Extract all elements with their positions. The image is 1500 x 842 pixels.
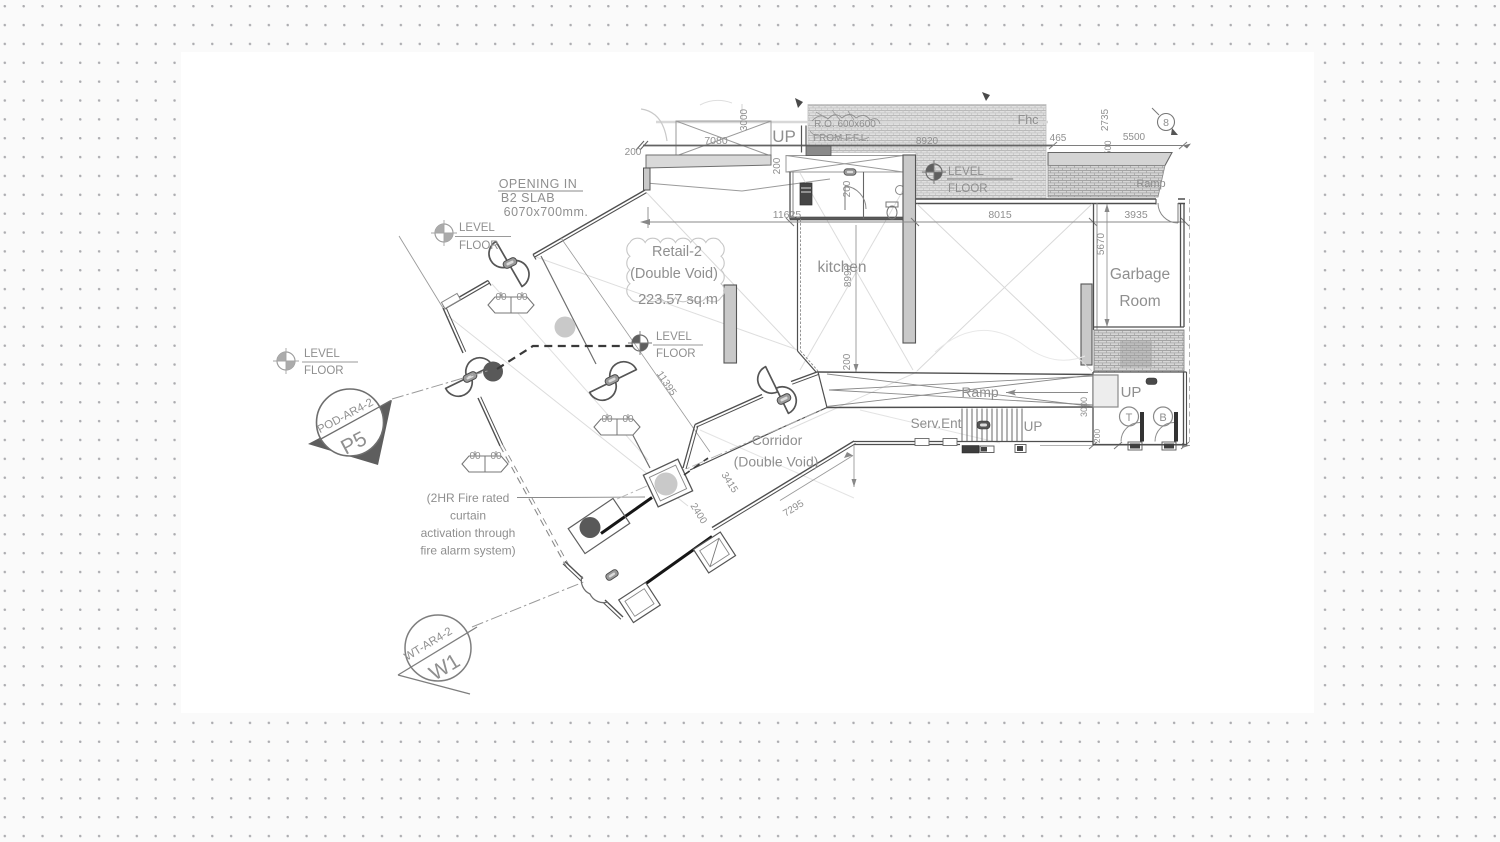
svg-text:7080: 7080 <box>704 135 728 147</box>
svg-text:FLOOR: FLOOR <box>948 183 988 195</box>
svg-text:T: T <box>1126 412 1133 424</box>
svg-text:FLOOR: FLOOR <box>304 365 344 377</box>
svg-text:Fhc: Fhc <box>1018 113 1039 127</box>
svg-text:(Double Void): (Double Void) <box>630 266 718 282</box>
svg-text:8015: 8015 <box>988 209 1012 221</box>
svg-text:200: 200 <box>625 147 642 158</box>
svg-text:B: B <box>1159 412 1166 424</box>
svg-text:(2HR Fire rated: (2HR Fire rated <box>427 491 510 505</box>
svg-text:fire alarm system): fire alarm system) <box>420 544 515 558</box>
svg-text:activation through: activation through <box>421 526 516 540</box>
svg-text:Ramp: Ramp <box>961 384 999 400</box>
svg-text:FLOOR: FLOOR <box>459 240 499 252</box>
svg-text:(Double Void): (Double Void) <box>734 454 819 470</box>
svg-text:5670: 5670 <box>1096 232 1107 255</box>
svg-text:200: 200 <box>772 157 783 174</box>
svg-text:FLOOR: FLOOR <box>656 348 696 360</box>
svg-text:465: 465 <box>1050 133 1067 144</box>
svg-text:LEVEL: LEVEL <box>948 166 984 178</box>
svg-text:5500: 5500 <box>1123 132 1146 143</box>
svg-text:Serv.Ent: Serv.Ent <box>911 416 962 431</box>
svg-text:LEVEL: LEVEL <box>459 222 495 234</box>
svg-text:kitchen: kitchen <box>817 259 866 276</box>
svg-text:Retail-2: Retail-2 <box>652 244 702 260</box>
svg-text:UP: UP <box>1024 419 1043 434</box>
svg-text:curtain: curtain <box>450 509 486 523</box>
svg-text:R.O. 600x600: R.O. 600x600 <box>814 119 876 130</box>
svg-text:200: 200 <box>1092 429 1102 443</box>
svg-text:8990: 8990 <box>843 264 854 287</box>
svg-text:200: 200 <box>842 180 853 197</box>
svg-text:11625: 11625 <box>773 209 802 221</box>
svg-text:LEVEL: LEVEL <box>656 331 692 343</box>
svg-text:B2 SLAB: B2 SLAB <box>501 191 555 205</box>
svg-text:223.57 sq.m: 223.57 sq.m <box>638 292 718 308</box>
svg-text:3000: 3000 <box>1079 397 1089 417</box>
svg-text:Corridor: Corridor <box>752 432 803 448</box>
svg-text:UP: UP <box>1121 384 1142 401</box>
svg-text:8920: 8920 <box>916 136 939 147</box>
svg-text:2735: 2735 <box>1100 108 1111 131</box>
svg-text:6070x700mm.: 6070x700mm. <box>504 205 589 219</box>
svg-text:200: 200 <box>842 353 853 370</box>
svg-text:LEVEL: LEVEL <box>304 348 340 360</box>
svg-text:Garbage: Garbage <box>1110 266 1170 283</box>
svg-text:3935: 3935 <box>1124 209 1148 221</box>
svg-text:3000: 3000 <box>739 108 750 131</box>
svg-text:8: 8 <box>1163 117 1169 129</box>
svg-text:UP: UP <box>772 127 796 146</box>
svg-text:Ramp: Ramp <box>1136 178 1165 190</box>
svg-text:Room: Room <box>1119 293 1160 310</box>
svg-text:OPENING IN: OPENING IN <box>499 177 578 191</box>
